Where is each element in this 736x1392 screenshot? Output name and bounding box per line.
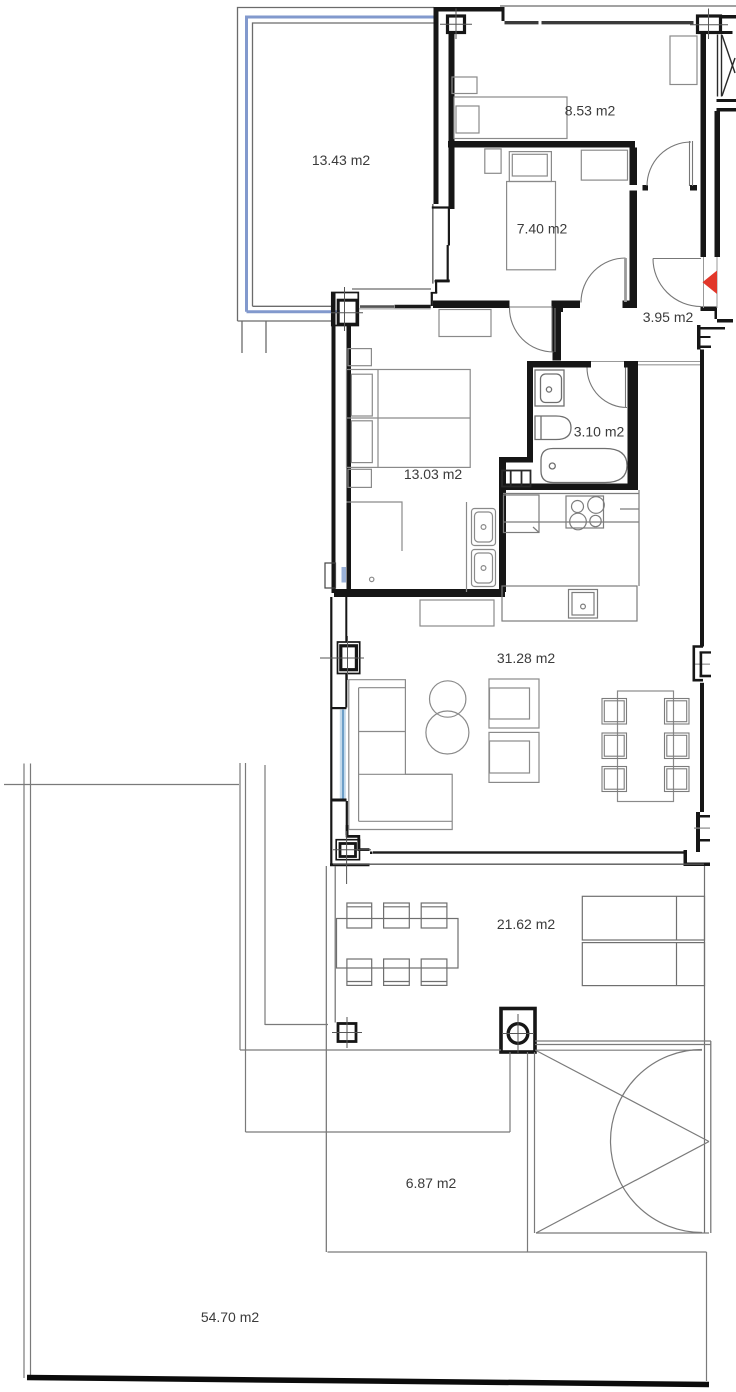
svg-text:3.10 m2: 3.10 m2 [574, 424, 625, 440]
svg-text:3.95 m2: 3.95 m2 [643, 309, 694, 325]
svg-text:13.43 m2: 13.43 m2 [312, 152, 371, 168]
svg-text:6.87 m2: 6.87 m2 [406, 1175, 457, 1191]
svg-text:21.62 m2: 21.62 m2 [497, 916, 556, 932]
svg-text:8.53 m2: 8.53 m2 [565, 103, 616, 119]
svg-text:7.40 m2: 7.40 m2 [517, 221, 568, 237]
svg-text:31.28 m2: 31.28 m2 [497, 650, 556, 666]
svg-text:54.70 m2: 54.70 m2 [201, 1309, 260, 1325]
svg-text:13.03 m2: 13.03 m2 [404, 466, 463, 482]
